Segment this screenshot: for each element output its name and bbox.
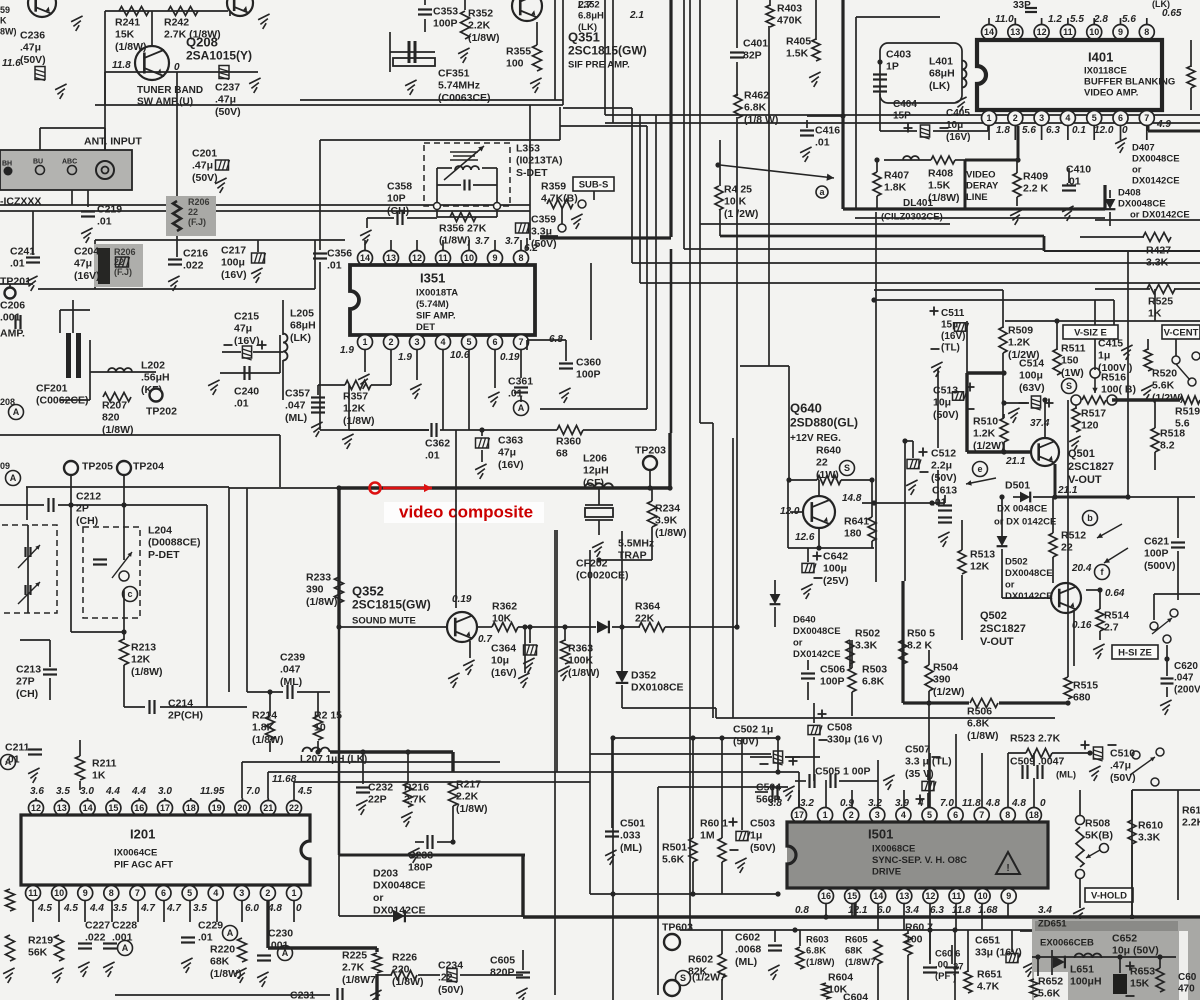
- svg-text:7: 7: [1144, 113, 1149, 123]
- svg-text:c: c: [127, 589, 132, 599]
- svg-text:(LK): (LK): [290, 332, 311, 344]
- svg-text:20: 20: [237, 803, 247, 813]
- svg-text:120: 120: [1081, 420, 1099, 432]
- svg-text:C236: C236: [20, 29, 45, 41]
- svg-text:(1/8 W): (1/8 W): [744, 114, 778, 126]
- svg-text:C234: C234: [438, 959, 463, 971]
- svg-text:R604: R604: [828, 971, 853, 983]
- svg-text:C231: C231: [290, 989, 315, 1000]
- svg-text:C401: C401: [743, 37, 768, 49]
- svg-text:5: 5: [927, 810, 932, 820]
- svg-text:(16V): (16V): [946, 132, 970, 143]
- svg-text:I201: I201: [130, 826, 155, 841]
- svg-text:C613: C613: [932, 484, 957, 496]
- svg-text:(50V): (50V): [933, 409, 959, 421]
- svg-text:100μ: 100μ: [1019, 370, 1043, 382]
- svg-text:C361: C361: [508, 375, 533, 387]
- svg-text:C353: C353: [433, 5, 458, 17]
- svg-text:21.1: 21.1: [1005, 456, 1026, 467]
- svg-text:2.2K: 2.2K: [468, 20, 491, 32]
- svg-text:.01: .01: [327, 260, 342, 272]
- svg-text:1.2K: 1.2K: [343, 403, 366, 415]
- svg-text:4.4: 4.4: [131, 786, 146, 797]
- svg-text:R653: R653: [1130, 965, 1155, 977]
- svg-text:6: 6: [1118, 113, 1123, 123]
- svg-text:180: 180: [844, 528, 862, 540]
- svg-text:R241: R241: [115, 16, 140, 28]
- svg-text:D502: D502: [1005, 557, 1028, 568]
- svg-text:12.0: 12.0: [1094, 125, 1114, 136]
- svg-text:6.8K: 6.8K: [967, 718, 990, 730]
- svg-text:D352: D352: [631, 669, 656, 681]
- svg-text:C230: C230: [268, 927, 293, 939]
- svg-text:A: A: [10, 473, 17, 483]
- svg-text:59: 59: [0, 5, 10, 15]
- svg-text:(1/8W): (1/8W): [343, 415, 375, 427]
- svg-text:A: A: [13, 407, 20, 417]
- svg-text:4.8: 4.8: [1011, 798, 1026, 809]
- svg-text:R356 27K: R356 27K: [439, 222, 487, 234]
- svg-text:R407: R407: [884, 169, 909, 181]
- svg-text:R506: R506: [967, 705, 992, 717]
- svg-text:C356: C356: [327, 247, 352, 259]
- svg-text:D640: D640: [793, 615, 816, 626]
- svg-text:C621: C621: [1144, 535, 1169, 547]
- svg-text:C510: C510: [1110, 747, 1135, 759]
- svg-text:A: A: [5, 757, 12, 767]
- svg-text:R520: R520: [1152, 367, 1177, 379]
- svg-text:TP603: TP603: [662, 921, 693, 933]
- svg-text:R605: R605: [845, 935, 868, 946]
- svg-text:A: A: [282, 948, 289, 958]
- svg-text:0.8: 0.8: [795, 905, 809, 916]
- svg-text:3: 3: [414, 337, 419, 347]
- svg-text:R403: R403: [777, 2, 802, 14]
- svg-text:(16V): (16V): [498, 459, 524, 471]
- svg-text:09: 09: [0, 461, 10, 471]
- svg-text:S: S: [1066, 381, 1072, 391]
- svg-text:L352: L352: [578, 0, 600, 11]
- svg-text:CF201: CF201: [36, 382, 68, 394]
- svg-text:1.5K: 1.5K: [786, 48, 809, 60]
- svg-text:A: A: [122, 943, 129, 953]
- svg-text:EX0066CEB: EX0066CEB: [1040, 938, 1094, 949]
- svg-text:2SA1015(Y): 2SA1015(Y): [186, 49, 252, 63]
- svg-text:C508: C508: [827, 721, 852, 733]
- svg-text:TP205: TP205: [82, 460, 113, 472]
- svg-text:4.5: 4.5: [63, 903, 78, 914]
- svg-text:R504: R504: [933, 661, 958, 673]
- svg-text:C60 6: C60 6: [935, 949, 960, 960]
- svg-text:.01: .01: [10, 258, 25, 270]
- svg-text:10μ: 10μ: [491, 655, 509, 667]
- svg-text:R511: R511: [1061, 342, 1086, 354]
- svg-text:21: 21: [263, 803, 273, 813]
- svg-text:11.8: 11.8: [962, 798, 981, 809]
- svg-text:L651: L651: [1070, 963, 1094, 975]
- svg-text:C227: C227: [85, 919, 110, 931]
- svg-text:b: b: [1087, 513, 1093, 523]
- svg-text:10: 10: [54, 888, 64, 898]
- svg-text:R502: R502: [855, 627, 880, 639]
- svg-text:e: e: [977, 464, 982, 474]
- svg-text:CF202: CF202: [576, 557, 608, 569]
- svg-text:(16V): (16V): [221, 269, 247, 281]
- svg-text:6.8K: 6.8K: [744, 102, 767, 114]
- svg-text:C357: C357: [285, 387, 310, 399]
- svg-text:S-DET: S-DET: [516, 167, 548, 179]
- svg-text:C363: C363: [498, 434, 523, 446]
- svg-text:Q501: Q501: [1068, 448, 1095, 460]
- svg-text:(16V): (16V): [491, 667, 517, 679]
- svg-text:(5.74M): (5.74M): [416, 299, 449, 310]
- svg-text:(1/8W): (1/8W): [568, 667, 600, 679]
- svg-text:R364: R364: [635, 600, 660, 612]
- svg-text:4.5: 4.5: [297, 786, 312, 797]
- svg-text:.022: .022: [183, 260, 204, 272]
- svg-text:3: 3: [239, 888, 244, 898]
- svg-text:19: 19: [212, 803, 222, 813]
- svg-text:1.2: 1.2: [1048, 14, 1062, 25]
- svg-text:R352: R352: [468, 7, 493, 19]
- svg-text:R652: R652: [1038, 975, 1063, 987]
- svg-text:(50V): (50V): [931, 472, 957, 484]
- svg-text:(1/8W): (1/8W): [967, 730, 999, 742]
- svg-text:150: 150: [1061, 355, 1079, 367]
- svg-text:1.9: 1.9: [340, 345, 354, 356]
- svg-text:SIF AMP.: SIF AMP.: [416, 311, 456, 322]
- svg-text:(1/2W): (1/2W): [933, 686, 965, 698]
- svg-text:3.9K: 3.9K: [655, 515, 678, 527]
- svg-text:R515: R515: [1073, 679, 1098, 691]
- svg-text:R355: R355: [506, 45, 531, 57]
- svg-text:.01: .01: [425, 450, 440, 462]
- svg-text:100: 100: [506, 58, 524, 70]
- svg-text:6.8K: 6.8K: [806, 946, 826, 957]
- svg-text:R523 2.7K: R523 2.7K: [1010, 732, 1061, 744]
- svg-text:12.6: 12.6: [795, 532, 815, 543]
- svg-text:C604: C604: [843, 991, 868, 1000]
- svg-text:1.2K: 1.2K: [1008, 337, 1031, 349]
- svg-text:5: 5: [187, 888, 192, 898]
- svg-text:6.0: 6.0: [877, 905, 891, 916]
- svg-text:22: 22: [289, 803, 299, 813]
- svg-text:R360: R360: [556, 435, 581, 447]
- svg-text:47μ: 47μ: [234, 323, 252, 335]
- svg-text:10P: 10P: [387, 193, 406, 205]
- svg-text:1M: 1M: [700, 830, 715, 842]
- svg-text:5.6: 5.6: [1022, 125, 1036, 136]
- svg-text:3.5: 3.5: [113, 903, 127, 914]
- svg-text:1.8K: 1.8K: [884, 182, 907, 194]
- svg-text:R359: R359: [541, 180, 566, 192]
- svg-text:1K: 1K: [92, 770, 106, 782]
- svg-text:1: 1: [986, 113, 991, 123]
- svg-text:R207: R207: [102, 399, 127, 411]
- svg-text:C652: C652: [1112, 932, 1137, 944]
- svg-text:3.7: 3.7: [505, 236, 519, 247]
- svg-text:C602: C602: [735, 931, 760, 943]
- svg-text:5.6K: 5.6K: [662, 854, 685, 866]
- svg-text:5.6K: 5.6K: [1038, 988, 1061, 1000]
- svg-text:56K: 56K: [28, 947, 48, 959]
- svg-text:0.19: 0.19: [452, 594, 472, 605]
- svg-text:(500V): (500V): [1144, 560, 1176, 572]
- svg-text:10.6: 10.6: [450, 350, 470, 361]
- svg-text:5: 5: [1092, 113, 1097, 123]
- svg-text:D407: D407: [1132, 143, 1155, 154]
- svg-text:2.1: 2.1: [629, 10, 644, 21]
- svg-text:1.8K: 1.8K: [252, 722, 275, 734]
- svg-text:R512: R512: [1061, 529, 1086, 541]
- svg-text:Q352: Q352: [352, 583, 384, 598]
- svg-text:11.95: 11.95: [200, 786, 225, 797]
- svg-text:0.19: 0.19: [500, 352, 520, 363]
- svg-text:C241: C241: [10, 245, 35, 257]
- svg-text:.56μH: .56μH: [141, 372, 170, 384]
- svg-text:11.8: 11.8: [112, 60, 131, 71]
- svg-text:(C0020CE): (C0020CE): [576, 570, 629, 582]
- svg-text:7.0: 7.0: [940, 798, 954, 809]
- svg-text:6.8μH: 6.8μH: [578, 11, 604, 22]
- svg-text:BU: BU: [33, 159, 43, 166]
- svg-text:7.0: 7.0: [246, 786, 260, 797]
- svg-text:C513: C513: [933, 384, 958, 396]
- svg-text:(F.J): (F.J): [188, 217, 206, 227]
- svg-text:R242: R242: [164, 16, 189, 28]
- svg-text:12: 12: [31, 803, 41, 813]
- svg-text:1K: 1K: [1148, 308, 1162, 320]
- svg-text:(CH): (CH): [16, 688, 38, 700]
- svg-text:10K: 10K: [492, 613, 512, 625]
- svg-text:(LK): (LK): [1152, 0, 1170, 9]
- svg-text:14: 14: [83, 803, 93, 813]
- svg-text:1.2K: 1.2K: [973, 428, 996, 440]
- svg-text:(200V: (200V: [1174, 684, 1200, 695]
- svg-text:18: 18: [1029, 810, 1039, 820]
- svg-text:100P: 100P: [1144, 548, 1169, 560]
- svg-text:(CILZ0302CE): (CILZ0302CE): [881, 212, 943, 223]
- svg-text:SUB-S: SUB-S: [579, 179, 609, 190]
- svg-text:13: 13: [899, 891, 909, 901]
- svg-text:4: 4: [1065, 113, 1070, 123]
- svg-text:10: 10: [1089, 27, 1099, 37]
- svg-text:R525: R525: [1148, 295, 1173, 307]
- svg-text:68K: 68K: [210, 956, 230, 968]
- svg-text:!: !: [1006, 863, 1009, 874]
- svg-text:R206: R206: [114, 247, 136, 257]
- svg-text:22P: 22P: [368, 794, 387, 806]
- svg-text:(50V): (50V): [20, 54, 46, 66]
- svg-text:(1/2W): (1/2W): [1152, 392, 1184, 404]
- svg-text:C359: C359: [531, 213, 556, 225]
- svg-text:S: S: [844, 463, 850, 473]
- svg-text:DX 0048CE: DX 0048CE: [997, 504, 1047, 515]
- svg-text:.033: .033: [620, 830, 641, 842]
- svg-text:DX0142CE: DX0142CE: [1132, 176, 1180, 187]
- svg-text:(ML): (ML): [620, 842, 642, 854]
- svg-text:11: 11: [952, 891, 962, 901]
- svg-text:2: 2: [265, 888, 270, 898]
- svg-text:2SD880(GL): 2SD880(GL): [790, 416, 858, 430]
- svg-text:R603: R603: [806, 935, 829, 946]
- svg-text:TUNER BAND: TUNER BAND: [137, 85, 203, 96]
- svg-text:(50V): (50V): [192, 172, 218, 184]
- svg-text:37.4: 37.4: [1030, 418, 1050, 429]
- svg-text:C403: C403: [886, 48, 911, 60]
- svg-text:(1/8W): (1/8W): [306, 596, 338, 608]
- svg-text:22K: 22K: [635, 613, 655, 625]
- svg-text:.00: .00: [935, 960, 948, 971]
- svg-text:22: 22: [188, 207, 198, 217]
- svg-text:DX0142CE: DX0142CE: [1005, 591, 1053, 602]
- svg-text:1.5K: 1.5K: [928, 180, 951, 192]
- svg-text:1P: 1P: [886, 61, 899, 73]
- svg-text:R213: R213: [131, 641, 156, 653]
- svg-text:0.1: 0.1: [1072, 125, 1086, 136]
- svg-text:Q208: Q208: [186, 34, 218, 49]
- svg-text:2: 2: [849, 810, 854, 820]
- svg-text:3.0: 3.0: [158, 786, 172, 797]
- svg-text:2.2μ: 2.2μ: [931, 460, 952, 472]
- svg-text:9: 9: [1006, 891, 1011, 901]
- svg-text:IX0064CE: IX0064CE: [114, 848, 157, 859]
- svg-text:5.5MHz: 5.5MHz: [618, 537, 654, 549]
- svg-text:(TL): (TL): [941, 343, 960, 354]
- svg-text:47μ: 47μ: [74, 258, 92, 270]
- svg-text:V-OUT: V-OUT: [980, 636, 1014, 648]
- svg-text:A: A: [518, 403, 525, 413]
- svg-text:R513: R513: [970, 548, 995, 560]
- svg-text:15K: 15K: [1130, 978, 1150, 990]
- svg-text:27P: 27P: [16, 676, 35, 688]
- svg-text:C216: C216: [183, 247, 208, 259]
- svg-text:C405: C405: [946, 108, 970, 119]
- svg-text:4: 4: [917, 798, 924, 809]
- svg-text:(1/8W): (1/8W): [806, 957, 835, 968]
- svg-text:5.6: 5.6: [1175, 418, 1190, 430]
- svg-text:or: or: [1005, 580, 1015, 591]
- svg-text:DX0048CE: DX0048CE: [373, 880, 426, 892]
- svg-text:14: 14: [984, 27, 994, 37]
- svg-text:C642: C642: [823, 550, 848, 562]
- svg-text:Q640: Q640: [790, 400, 822, 415]
- svg-text:(I0213TA): (I0213TA): [516, 155, 563, 167]
- svg-text:R514: R514: [1104, 609, 1129, 621]
- svg-text:or DX0142CE: or DX0142CE: [1130, 210, 1190, 221]
- svg-text:12K: 12K: [131, 654, 151, 666]
- svg-text:11: 11: [28, 888, 38, 898]
- svg-text:(D0088CE): (D0088CE): [148, 537, 201, 549]
- svg-text:100( B): 100( B): [1101, 384, 1136, 396]
- svg-text:R219: R219: [28, 934, 53, 946]
- svg-text:C232: C232: [368, 781, 393, 793]
- svg-text:C605: C605: [490, 954, 515, 966]
- svg-text:I501: I501: [868, 826, 893, 841]
- svg-text:C512: C512: [931, 447, 956, 459]
- svg-text:3.4: 3.4: [905, 905, 919, 916]
- svg-text:9: 9: [492, 253, 497, 263]
- svg-text:6: 6: [161, 888, 166, 898]
- svg-text:VIDEO: VIDEO: [966, 170, 996, 181]
- svg-text:D408: D408: [1118, 188, 1141, 199]
- svg-text:C217: C217: [221, 244, 246, 256]
- svg-text:(63V): (63V): [1019, 382, 1045, 394]
- svg-text:R4 25: R4 25: [724, 183, 752, 195]
- svg-text:470K: 470K: [777, 15, 803, 27]
- svg-text:15P: 15P: [893, 111, 911, 122]
- svg-text:SOUND MUTE: SOUND MUTE: [352, 616, 416, 627]
- svg-text:.01: .01: [815, 137, 830, 149]
- svg-text:R462: R462: [744, 89, 769, 101]
- svg-text:68μH: 68μH: [929, 68, 955, 80]
- svg-text:4: 4: [440, 337, 445, 347]
- svg-text:PIF AGC AFT: PIF AGC AFT: [114, 860, 173, 871]
- svg-text:3.0: 3.0: [80, 786, 94, 797]
- svg-text:2: 2: [388, 337, 393, 347]
- svg-text:C237: C237: [215, 81, 240, 93]
- svg-text:5.5: 5.5: [1070, 14, 1084, 25]
- svg-text:6.3: 6.3: [930, 905, 944, 916]
- svg-text:8.2 K: 8.2 K: [907, 640, 933, 652]
- svg-text:470: 470: [1178, 984, 1195, 995]
- svg-text:R409: R409: [1023, 170, 1048, 182]
- svg-text:L401: L401: [929, 55, 953, 67]
- svg-text:R405: R405: [786, 35, 811, 47]
- svg-text:L207 1μH (LK): L207 1μH (LK): [300, 754, 367, 765]
- svg-text:11.0: 11.0: [995, 14, 1014, 25]
- svg-text:(25V): (25V): [823, 575, 849, 587]
- svg-text:R211: R211: [92, 757, 117, 769]
- svg-text:R214: R214: [252, 709, 277, 721]
- svg-text:2SC1827: 2SC1827: [1068, 461, 1114, 473]
- svg-text:C360: C360: [576, 356, 601, 368]
- svg-text:47μ: 47μ: [498, 447, 516, 459]
- svg-text:(50V): (50V): [215, 106, 241, 118]
- svg-text:(ML): (ML): [285, 412, 307, 424]
- svg-text:3.7: 3.7: [475, 236, 489, 247]
- svg-text:0.16: 0.16: [1072, 620, 1092, 631]
- svg-text:8: 8: [1005, 810, 1010, 820]
- svg-text:(50V): (50V): [438, 984, 464, 996]
- svg-text:C511: C511: [941, 308, 965, 319]
- svg-text:8.2: 8.2: [1160, 440, 1175, 452]
- svg-text:SIF PRE AMP.: SIF PRE AMP.: [568, 60, 630, 71]
- svg-text:15μ: 15μ: [941, 320, 958, 331]
- svg-text:C229: C229: [198, 919, 223, 931]
- svg-text:C212: C212: [76, 490, 101, 502]
- svg-text:R651: R651: [977, 968, 1002, 980]
- svg-text:820: 820: [102, 412, 120, 424]
- svg-text:2P(CH): 2P(CH): [168, 710, 203, 722]
- svg-text:R508: R508: [1085, 817, 1110, 829]
- svg-text:C505 1 00P: C505 1 00P: [815, 765, 870, 777]
- svg-text:0.65: 0.65: [1162, 8, 1182, 19]
- svg-text:TP201: TP201: [0, 275, 31, 287]
- svg-text:K: K: [0, 16, 7, 26]
- svg-text:4.7: 4.7: [140, 903, 155, 914]
- svg-text:5.6K: 5.6K: [1152, 380, 1175, 392]
- svg-text:R640: R640: [816, 444, 841, 456]
- svg-text:11.68: 11.68: [272, 774, 297, 785]
- svg-text:33P: 33P: [1013, 0, 1031, 11]
- svg-text:R610: R610: [1138, 819, 1163, 831]
- svg-text:3.6: 3.6: [30, 786, 44, 797]
- svg-text:100μ: 100μ: [823, 563, 847, 575]
- svg-text:6.3: 6.3: [1046, 125, 1060, 136]
- svg-text:SW AMP.(U): SW AMP.(U): [137, 97, 193, 108]
- svg-text:R357: R357: [343, 390, 368, 402]
